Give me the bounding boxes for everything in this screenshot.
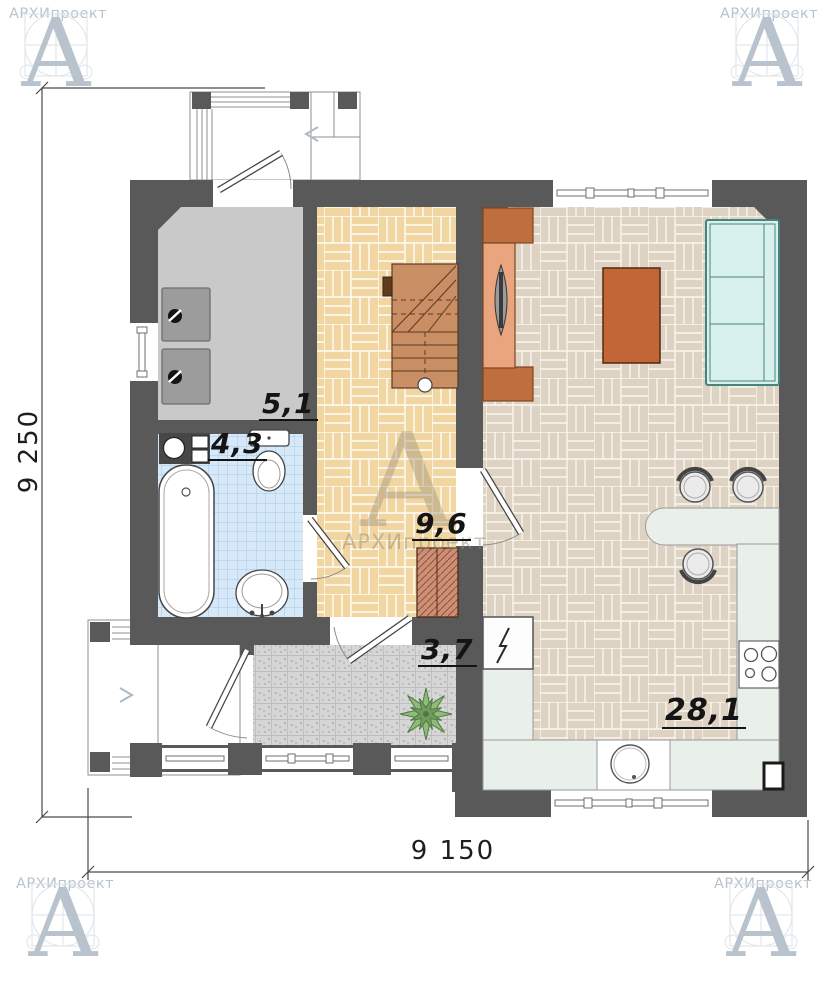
room-label-utility: 5,1 xyxy=(259,390,318,421)
stairs xyxy=(383,264,458,392)
coffee-table xyxy=(603,268,660,363)
counter-sink xyxy=(164,438,185,459)
room-label-hallway: 9,6 xyxy=(412,510,471,541)
logo-letter: А xyxy=(725,876,797,970)
top-porch xyxy=(190,92,360,180)
brand-logo-top-right: А АРХИпроект xyxy=(714,6,826,22)
logo-letter: А xyxy=(27,876,99,970)
washing-machine xyxy=(162,288,210,341)
dryer-machine xyxy=(162,349,210,404)
room-label-entry: 3,7 xyxy=(418,636,477,667)
stair-newel xyxy=(418,378,432,392)
logo-letter: А xyxy=(20,6,92,100)
dimension-text-horizontal: 9 150 xyxy=(388,838,518,864)
bar-stool xyxy=(731,469,765,502)
wall-pier xyxy=(353,743,391,775)
brand-logo-top-left: А АРХИпроект xyxy=(3,6,115,22)
room-label-bathroom: 4,3 xyxy=(208,430,267,461)
bar-stool xyxy=(678,469,712,502)
bathtub-drain xyxy=(182,488,190,496)
counter-left xyxy=(483,669,533,740)
window-bottom xyxy=(555,798,708,808)
bar-counter xyxy=(646,508,780,545)
window-entry-3 xyxy=(395,756,448,761)
window-top xyxy=(557,188,708,198)
window-left xyxy=(137,327,147,377)
wall-right xyxy=(779,180,807,817)
logo-letter: А xyxy=(731,6,803,100)
plant xyxy=(400,688,452,740)
wall-pier xyxy=(452,743,483,792)
built-in-appliance xyxy=(764,763,783,789)
cooktop xyxy=(739,641,779,688)
fridge xyxy=(483,617,533,669)
logo-grid: А xyxy=(3,6,113,100)
window-entry-1 xyxy=(166,756,224,761)
wall-pier xyxy=(130,743,162,777)
bathtub xyxy=(159,465,214,618)
brand-logo-bottom-left: А АРХИпроект xyxy=(10,876,122,892)
wall-hall-living-upper xyxy=(456,180,483,468)
brand-logo-bottom-right: А АРХИпроект xyxy=(708,876,820,892)
bath-counter xyxy=(159,433,210,464)
sofa xyxy=(706,220,779,385)
bar-stool xyxy=(681,549,715,582)
floor-plan-sheet: А АРХИпроект 5,1 4,3 9,6 3,7 28,1 9 250 … xyxy=(0,0,826,990)
wall-pier xyxy=(228,743,262,775)
kitchen-sink xyxy=(597,740,670,790)
hatched-cabinet xyxy=(417,548,458,617)
room-label-living: 28,1 xyxy=(662,696,746,729)
wall-niche xyxy=(383,277,392,296)
wall-left xyxy=(130,180,158,645)
dimension-text-vertical: 9 250 xyxy=(16,386,42,516)
